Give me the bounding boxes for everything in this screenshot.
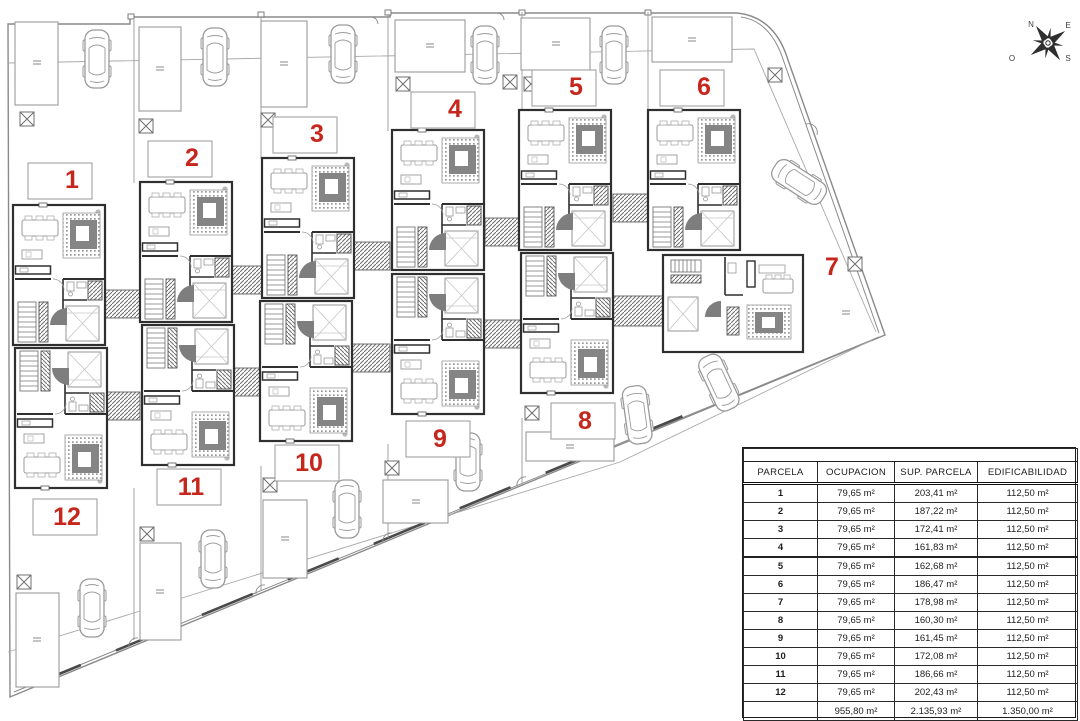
table-row: 7 79,65 m² 178,98 m² 112,50 m²	[744, 594, 1078, 612]
table-row: 5 79,65 m² 162,68 m² 112,50 m²	[744, 557, 1078, 576]
parcel-number-4: 4	[448, 95, 462, 123]
house-11	[142, 325, 234, 467]
car-icon	[471, 26, 499, 84]
car-icon	[78, 579, 106, 637]
table-total-row: 955,80 m² 2.135,93 m² 1.350,00 m²	[744, 702, 1078, 721]
house-8	[521, 253, 613, 395]
table-row: 12 79,65 m² 202,43 m² 112,50 m²	[744, 684, 1078, 702]
utility-box-icon	[396, 77, 410, 91]
table-row: 3 79,65 m² 172,41 m² 112,50 m²	[744, 521, 1078, 539]
parcel-number-2: 2	[185, 144, 199, 172]
pool	[383, 480, 448, 523]
table-header-row: PARCELA OCUPACION SUP. PARCELA EDIFICABI…	[744, 462, 1078, 484]
compass-rose-icon: N E S O	[1009, 14, 1077, 72]
house-10	[260, 301, 352, 443]
utility-box-icon	[17, 575, 31, 589]
parcel-number-1: 1	[65, 166, 79, 194]
house-1	[13, 203, 105, 345]
parcel-number-6: 6	[697, 73, 711, 101]
compass-e: E	[1065, 21, 1070, 30]
pool	[395, 20, 465, 72]
parcel-number-5: 5	[569, 73, 583, 101]
utility-box-icon	[140, 527, 154, 541]
pool	[16, 593, 59, 687]
car-icon	[199, 530, 227, 588]
parcel-number-9: 9	[433, 425, 447, 453]
house-9	[392, 274, 484, 416]
parcel-number-10: 10	[295, 449, 323, 477]
parcel-number-11: 11	[178, 473, 205, 501]
utility-box-icon	[848, 257, 862, 271]
house-5	[519, 108, 611, 250]
parcel-number-7: 7	[825, 253, 839, 281]
car-icon	[329, 25, 357, 83]
pool	[139, 27, 181, 111]
utility-box-icon	[525, 406, 539, 420]
house-6	[648, 108, 740, 250]
car-icon	[600, 26, 628, 84]
table-top-band	[744, 449, 1078, 462]
table-row: 6 79,65 m² 186,47 m² 112,50 m²	[744, 576, 1078, 594]
house-7	[663, 255, 803, 352]
pool	[263, 500, 307, 578]
parcel-summary-table: PARCELA OCUPACION SUP. PARCELA EDIFICABI…	[742, 447, 1076, 718]
utility-box-icon	[503, 75, 517, 89]
table-row: 2 79,65 m² 187,22 m² 112,50 m²	[744, 503, 1078, 521]
house-12	[15, 348, 107, 490]
utility-box-icon	[385, 461, 399, 475]
pool	[652, 17, 732, 62]
table-row: 4 79,65 m² 161,83 m² 112,50 m²	[744, 539, 1078, 558]
pool	[261, 21, 307, 107]
car-icon	[201, 28, 229, 86]
site-plan-page: { "plan": { "parcel_number_color": "#c52…	[0, 0, 1080, 720]
compass-o: O	[1009, 54, 1015, 63]
col-header: PARCELA	[744, 462, 818, 484]
col-header: OCUPACION	[818, 462, 895, 484]
compass-s: S	[1065, 54, 1070, 63]
col-header: SUP. PARCELA	[895, 462, 978, 484]
pool	[521, 18, 590, 70]
table-row: 9 79,65 m² 161,45 m² 112,50 m²	[744, 630, 1078, 648]
table-row: 1 79,65 m² 203,41 m² 112,50 m²	[744, 484, 1078, 503]
house-3	[262, 156, 354, 298]
pool	[140, 543, 181, 640]
car-icon	[83, 30, 111, 88]
house-2	[140, 180, 232, 322]
house-4	[392, 128, 484, 270]
compass-n: N	[1028, 20, 1034, 29]
table-row: 8 79,65 m² 160,30 m² 112,50 m²	[744, 612, 1078, 630]
table-row: 11 79,65 m² 186,66 m² 112,50 m²	[744, 666, 1078, 684]
utility-box-icon	[139, 119, 153, 133]
parcel-number-3: 3	[310, 120, 324, 148]
car-icon	[333, 480, 361, 538]
utility-box-icon	[768, 68, 782, 82]
parcel-number-12: 12	[53, 503, 81, 531]
utility-box-icon	[20, 112, 34, 126]
col-header: EDIFICABILIDAD	[978, 462, 1078, 484]
table-row: 10 79,65 m² 172,08 m² 112,50 m²	[744, 648, 1078, 666]
parcel-number-8: 8	[578, 407, 592, 435]
